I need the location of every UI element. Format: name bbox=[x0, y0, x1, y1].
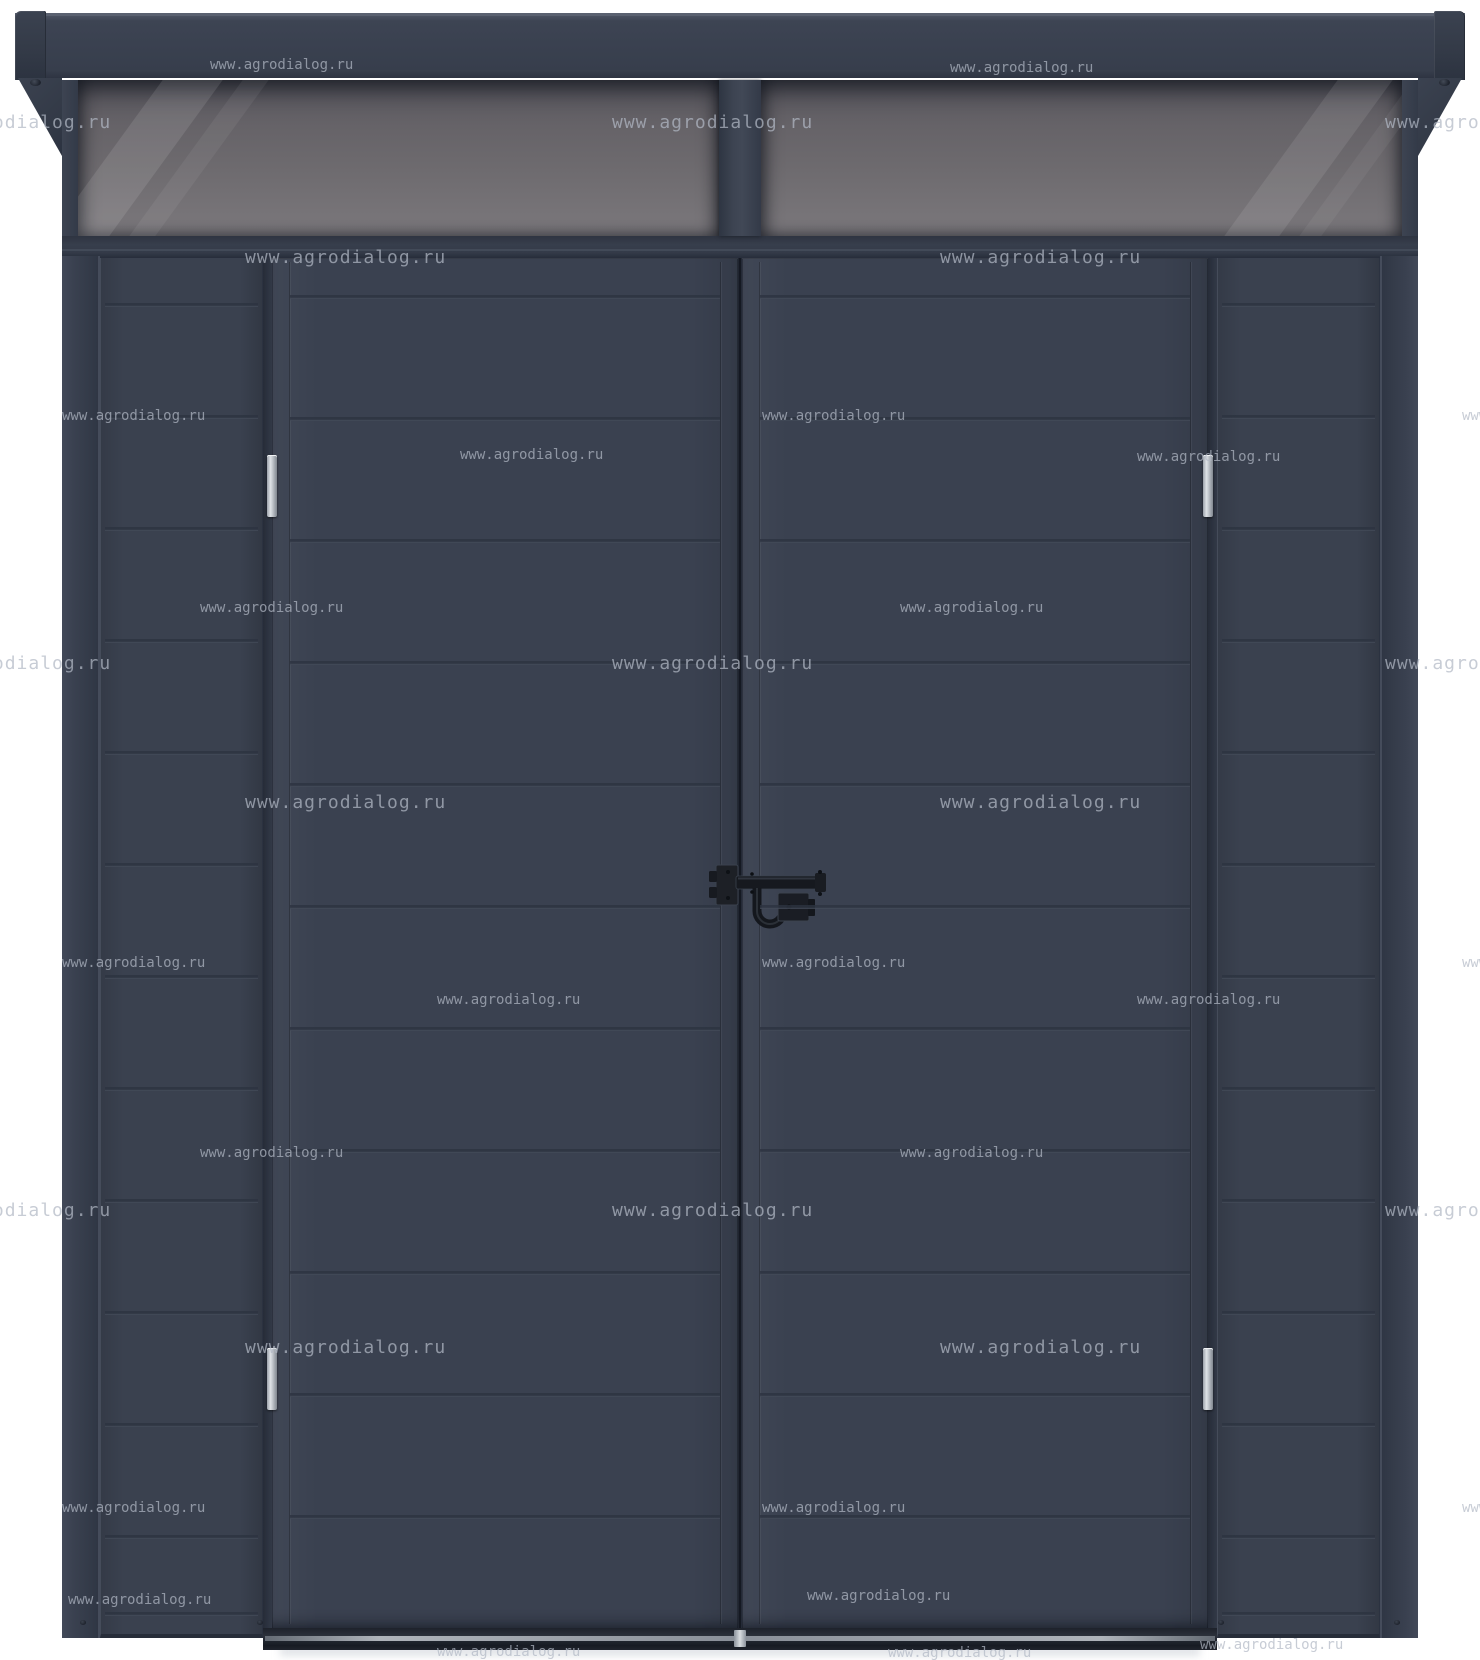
panel-seam bbox=[760, 1027, 1190, 1031]
panel-seam bbox=[290, 295, 720, 299]
door-center-gap bbox=[738, 258, 742, 1630]
panel-seam bbox=[1222, 639, 1375, 643]
panel-seam bbox=[1222, 1311, 1375, 1315]
door-hinge-bottom-left bbox=[267, 1348, 277, 1410]
panel-seam bbox=[1222, 863, 1375, 867]
door-hinge-top-right bbox=[1203, 455, 1213, 517]
watermark-text: www.agrodialog.ru bbox=[1462, 955, 1480, 971]
panel-seam bbox=[760, 661, 1190, 665]
panel-seam bbox=[290, 1149, 720, 1153]
roof-end-cap-right bbox=[1434, 11, 1465, 80]
panel-seam bbox=[105, 303, 258, 307]
door-foot-bolt bbox=[734, 1630, 746, 1647]
door-inset-line bbox=[759, 262, 760, 1624]
panel-seam bbox=[105, 1311, 258, 1315]
panel-bolt bbox=[1394, 1620, 1400, 1625]
panel-seam bbox=[290, 783, 720, 787]
panel-seam bbox=[760, 295, 1190, 299]
panel-seam bbox=[1222, 975, 1375, 979]
door-inset-line bbox=[720, 262, 721, 1624]
door-inset-line bbox=[1190, 262, 1191, 1624]
drop-bar-lock bbox=[700, 855, 840, 935]
panel-seam bbox=[105, 639, 258, 643]
panel-seam bbox=[1222, 1423, 1375, 1427]
door-hinge-top-left bbox=[267, 455, 277, 517]
panel-seam bbox=[105, 1423, 258, 1427]
panel-seam bbox=[290, 539, 720, 543]
door-left bbox=[272, 258, 738, 1630]
skylight-pane-right bbox=[761, 80, 1402, 236]
panel-seam bbox=[760, 1149, 1190, 1153]
panel-seam bbox=[1222, 1612, 1375, 1616]
panel-seam bbox=[1222, 1087, 1375, 1091]
panel-seam bbox=[1222, 303, 1375, 307]
skylight-jamb-left bbox=[62, 80, 78, 236]
panel-seam bbox=[1222, 1199, 1375, 1203]
panel-seam bbox=[760, 417, 1190, 421]
panel-seam bbox=[290, 417, 720, 421]
panel-seam bbox=[760, 1393, 1190, 1397]
rail-highlight bbox=[62, 249, 1418, 251]
panel-bolt bbox=[1218, 1620, 1224, 1625]
roof-fascia bbox=[15, 13, 1465, 78]
door-right bbox=[742, 258, 1208, 1630]
panel-seam bbox=[105, 751, 258, 755]
watermark-text: www.agrodialog.ru bbox=[1462, 408, 1480, 424]
panel-bolt bbox=[80, 1620, 86, 1625]
panel-seam bbox=[760, 539, 1190, 543]
wall-top-rail bbox=[62, 236, 1418, 258]
roof-bolt-right bbox=[1439, 79, 1450, 86]
panel-seam bbox=[1222, 415, 1375, 419]
panel-seam bbox=[1222, 527, 1375, 531]
panel-seam bbox=[290, 1027, 720, 1031]
panel-seam bbox=[760, 783, 1190, 787]
panel-seam bbox=[1222, 1535, 1375, 1539]
shed-product-image: www.agrodialog.ruwww.agrodialog.ruwww.ag… bbox=[0, 0, 1480, 1660]
roof-end-cap-left bbox=[15, 11, 46, 80]
lock-keeper-tab bbox=[709, 887, 717, 898]
watermark-text: www.agrodialog.ru bbox=[1200, 1637, 1343, 1653]
panel-bolt bbox=[257, 1620, 263, 1625]
panel-seam bbox=[290, 661, 720, 665]
panel-seam bbox=[760, 1271, 1190, 1275]
skylight-mullion bbox=[719, 80, 761, 236]
panel-seam bbox=[105, 1199, 258, 1203]
roof-bolt-left bbox=[30, 79, 41, 86]
panel-seam bbox=[290, 1393, 720, 1397]
panel-seam bbox=[105, 975, 258, 979]
side-panel-right bbox=[1217, 258, 1380, 1638]
lock-end-bracket bbox=[815, 873, 826, 892]
panel-seam bbox=[105, 863, 258, 867]
skylight-pane-left bbox=[78, 80, 719, 236]
door-hinge-bottom-right bbox=[1203, 1348, 1213, 1410]
watermark-text: www.agrodialog.ru bbox=[1462, 1500, 1480, 1516]
panel-seam bbox=[105, 1535, 258, 1539]
skylight-jamb-right bbox=[1402, 80, 1418, 236]
lock-keeper-tab bbox=[709, 871, 717, 882]
corner-post-left bbox=[62, 256, 100, 1638]
panel-seam bbox=[105, 1087, 258, 1091]
roof-gusset-right bbox=[1418, 78, 1462, 156]
panel-seam bbox=[290, 1515, 720, 1519]
corner-post-right bbox=[1380, 256, 1418, 1638]
panel-seam bbox=[105, 527, 258, 531]
panel-seam bbox=[105, 415, 258, 419]
panel-seam bbox=[1222, 751, 1375, 755]
roof-gusset-left bbox=[18, 78, 62, 156]
panel-seam bbox=[290, 1271, 720, 1275]
panel-seam bbox=[290, 905, 720, 909]
door-inset-line bbox=[289, 262, 290, 1624]
side-panel-left bbox=[100, 258, 263, 1638]
panel-seam bbox=[760, 905, 1190, 909]
panel-seam bbox=[105, 1612, 258, 1616]
panel-seam bbox=[760, 1515, 1190, 1519]
